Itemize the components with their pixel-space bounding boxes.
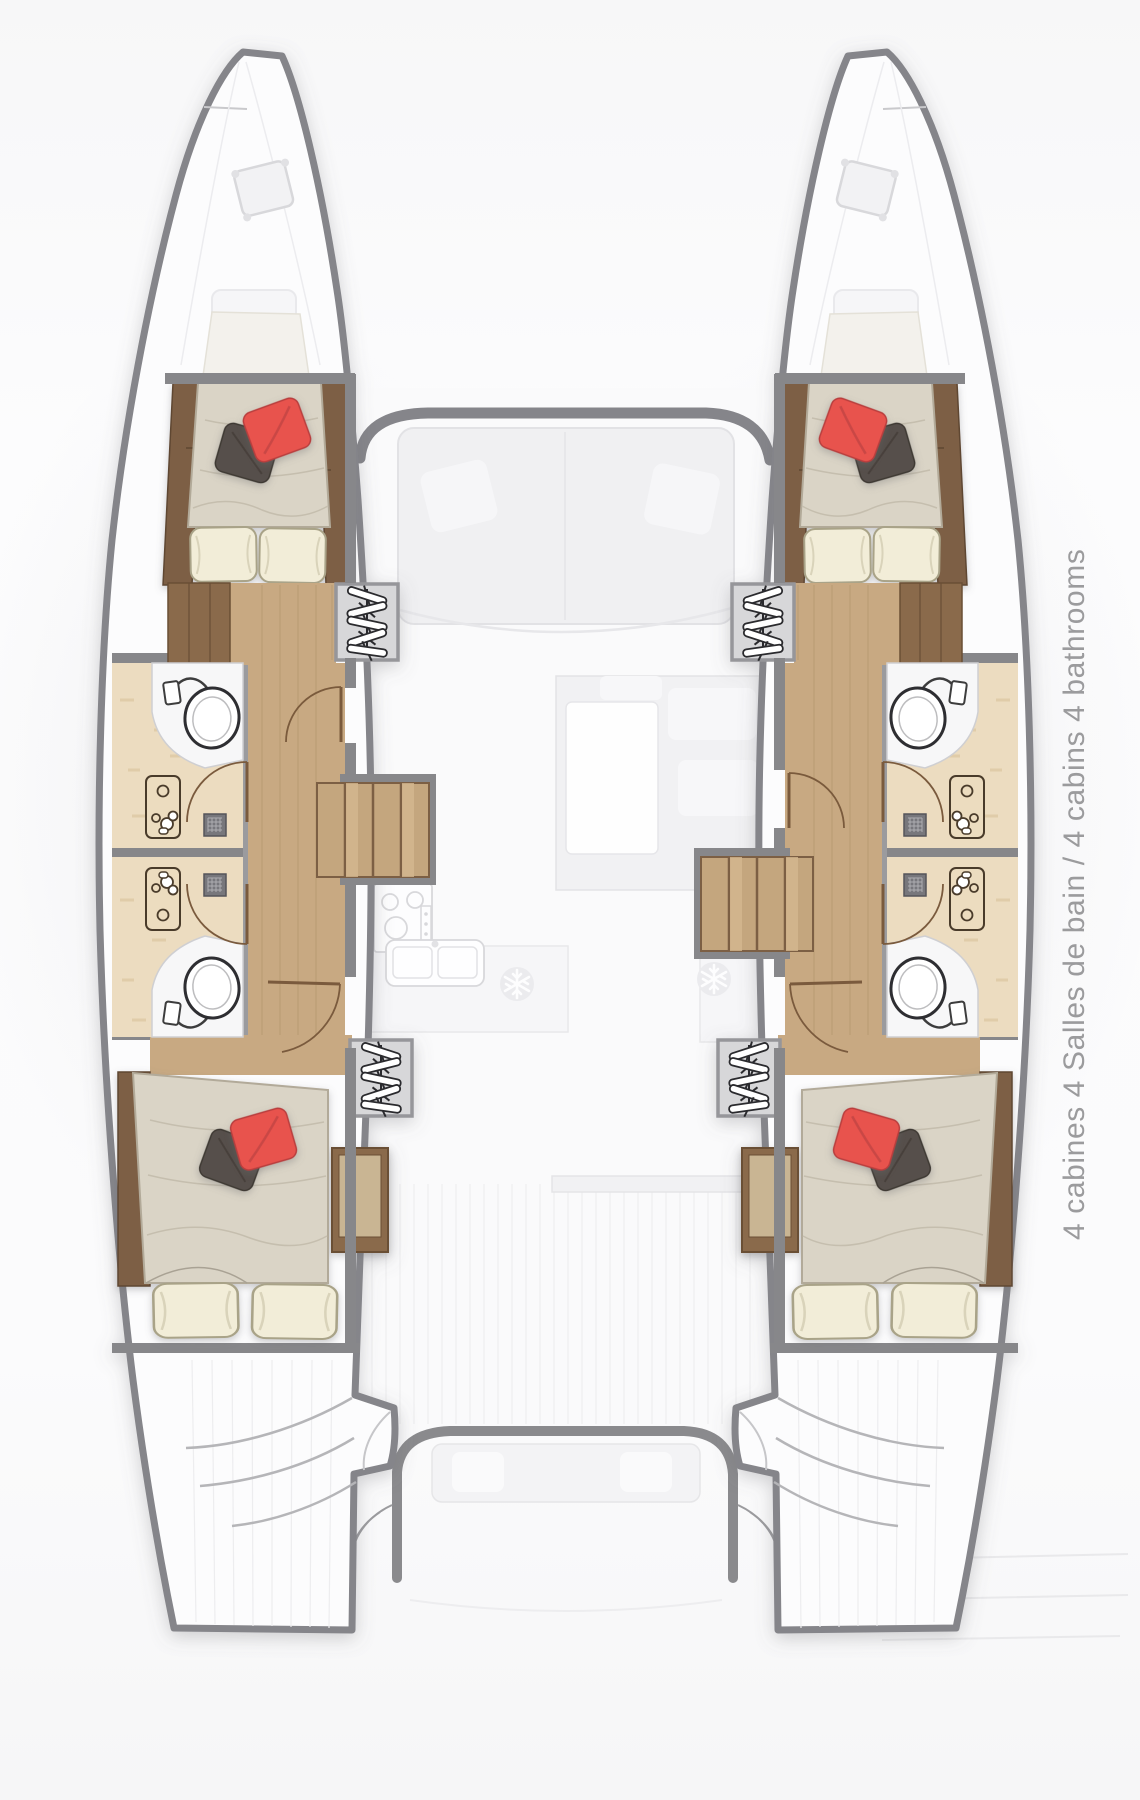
port-staircase [317,774,436,885]
floorplan-canvas: 4 cabines 4 Salles de bain / 4 cabins 4 … [0,0,1140,1800]
catamaran-deck-plan [0,0,1140,1800]
double-sink-icon [386,940,484,986]
plan-caption: 4 cabines 4 Salles de bain / 4 cabins 4 … [1058,528,1104,1240]
sliding-door [552,1176,774,1192]
starboard-staircase [694,848,813,959]
